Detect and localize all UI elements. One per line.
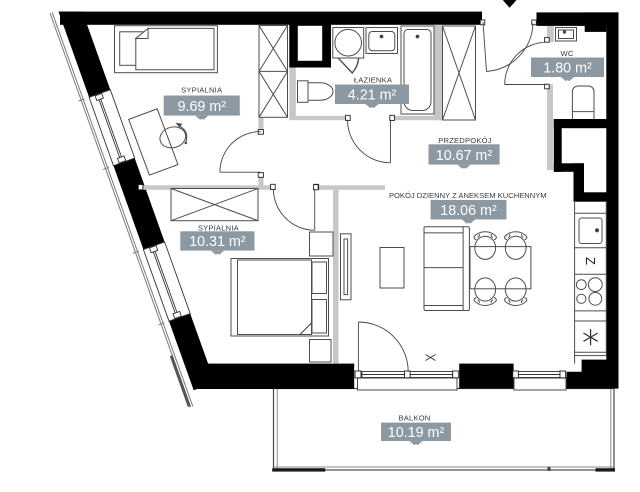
- svg-text:BALKON: BALKON: [398, 414, 430, 423]
- svg-text:9.69 m²: 9.69 m²: [178, 99, 227, 115]
- svg-text:SYPIALNIA: SYPIALNIA: [198, 223, 240, 232]
- svg-text:WC: WC: [560, 49, 573, 58]
- svg-text:ŁAZIENKA: ŁAZIENKA: [354, 75, 393, 84]
- svg-text:18.06 m²: 18.06 m²: [440, 203, 497, 219]
- svg-text:SYPIALNIA: SYPIALNIA: [181, 85, 223, 94]
- svg-text:PRZEDPOKÓJ: PRZEDPOKÓJ: [438, 136, 491, 145]
- svg-text:POKÓJ DZIENNY Z ANEKSEM KUCHEN: POKÓJ DZIENNY Z ANEKSEM KUCHENNYM: [389, 191, 547, 200]
- svg-text:1.80 m²: 1.80 m²: [543, 60, 592, 76]
- svg-text:Z: Z: [583, 257, 598, 265]
- svg-text:10.19 m²: 10.19 m²: [388, 425, 445, 441]
- svg-text:10.31 m²: 10.31 m²: [189, 234, 246, 250]
- svg-text:4.21 m²: 4.21 m²: [348, 87, 397, 103]
- svg-text:10.67 m²: 10.67 m²: [436, 148, 493, 164]
